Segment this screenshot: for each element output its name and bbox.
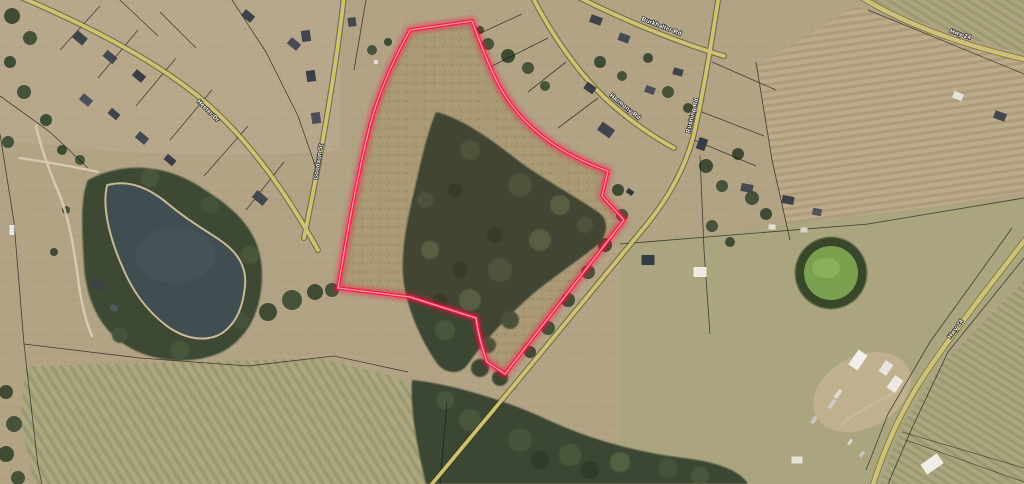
house [306, 70, 316, 82]
house [347, 17, 356, 27]
field-bottom-left [20, 358, 447, 484]
aerial-map-frame: Hester Dr Goodson St Burkhalter Rd Harmo… [0, 0, 1024, 484]
green-circle-pond [795, 237, 867, 309]
aerial-parcel-map: Hester Dr Goodson St Burkhalter Rd Harmo… [0, 0, 1024, 484]
shed [792, 457, 803, 464]
house [311, 112, 321, 124]
shed [374, 60, 378, 64]
pond-highlight [135, 227, 215, 283]
house [642, 255, 655, 265]
shed [801, 228, 808, 233]
truck [10, 225, 15, 235]
house [301, 30, 311, 42]
shed [769, 225, 776, 230]
barn [694, 267, 707, 277]
